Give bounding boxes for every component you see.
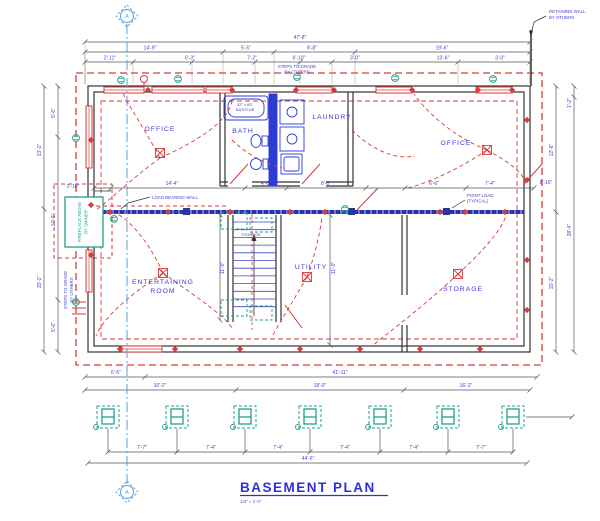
dryer-door <box>287 134 297 144</box>
laundry-tub-basin <box>284 157 299 171</box>
bath-sink <box>251 159 262 170</box>
title-block: BASEMENT PLAN 1/4" = 1'-0" <box>240 480 388 504</box>
dim-stair: 11'-0" <box>331 262 337 275</box>
outlet-symbol <box>524 307 530 313</box>
laundry-door <box>302 164 320 184</box>
vent-symbol <box>490 76 497 83</box>
outlet-symbol <box>462 209 468 215</box>
dim-right-beam: 8'-10" <box>540 180 553 186</box>
outlet-symbol <box>287 209 293 215</box>
retaining-wall-leader <box>531 16 546 34</box>
section-marker-top-label: A <box>125 14 129 20</box>
leader-arrowhead <box>530 31 533 36</box>
drawing-scale: 1/4" = 1'-0" <box>240 499 262 504</box>
point-load-note: POINT LOAD <box>467 193 494 198</box>
pad-footing <box>221 300 247 316</box>
dim-beam: 6'-6" <box>429 181 439 187</box>
load-bearing-wall-note: LOAD BEARING WALL <box>152 195 199 200</box>
under-stair-storage-label: STORAGE <box>241 232 261 237</box>
washer <box>280 100 304 124</box>
room-label-entertaining: ROOM <box>150 288 175 295</box>
dim-right: 1'-2" <box>567 98 573 108</box>
outlet-symbol <box>107 209 113 215</box>
steps-to-grade-top-note: STEPS TO GRADE <box>278 64 316 69</box>
electrical-circuit-curves <box>96 84 525 346</box>
basement-floor-plan: A A 47'-8" 14'-9" 5'-5" 8'-8" 19'-6" 2'-… <box>0 0 600 521</box>
room-label-laundry: LAUNDRY <box>312 114 351 121</box>
dim-footing: 7'-4" <box>340 445 350 451</box>
dim-top: 6'-10" <box>293 56 306 62</box>
dim-beam: 14'-4" <box>166 181 179 187</box>
steps-to-grade-top-note: BY OTHERS <box>284 70 309 75</box>
washer-door <box>287 107 297 117</box>
section-marker-bottom: A <box>116 481 138 503</box>
outlet-symbol <box>477 346 483 352</box>
dim-stair: 11'-0" <box>220 262 226 275</box>
light-fixture-symbol <box>156 149 165 158</box>
dim-beam: 4'-6" <box>261 181 271 187</box>
load-bearing-leader <box>121 197 150 209</box>
dim-bottom: 18'-0" <box>314 383 327 389</box>
dim-top: 5'-5" <box>241 46 251 52</box>
retaining-wall-note: BY OTHERS <box>549 15 574 20</box>
fireplace-note: FIREPLACE ABOVE <box>77 202 82 243</box>
outlet-symbol <box>524 257 530 263</box>
dim-top: 14'-9" <box>144 46 157 52</box>
toilet <box>251 135 261 148</box>
dim-beam: 7'-4" <box>485 181 495 187</box>
dim-left: 5'-6" <box>51 322 57 332</box>
fireplace-note: BY OWNER <box>84 210 89 234</box>
dim-top-total: 47'-8" <box>294 35 307 41</box>
dimension-texts: 47'-8" 14'-9" 5'-5" 8'-8" 19'-6" 2'-11" … <box>37 35 573 462</box>
column-footing-symbol <box>434 406 460 430</box>
walls <box>88 30 531 352</box>
vent-symbol <box>294 74 301 81</box>
dim-right: 12'-8" <box>549 143 555 156</box>
beam-post <box>348 208 355 215</box>
room-label-office-right: OFFICE <box>441 140 472 147</box>
outlet-symbol <box>357 346 363 352</box>
dim-footing: 7'-7" <box>137 445 147 451</box>
leader-lines <box>94 16 546 209</box>
section-line: A A <box>116 5 138 503</box>
light-fixture-symbol <box>303 273 312 282</box>
room-label-bath: BATH <box>232 128 254 135</box>
room-label-utility: UTILITY <box>295 264 327 271</box>
point-load-leader <box>452 200 465 208</box>
vent-symbol <box>118 77 125 84</box>
dim-top: 3'-0" <box>350 56 360 62</box>
pad-footing <box>221 213 247 229</box>
outlet-symbol <box>502 209 508 215</box>
dim-beam: 1'-10" <box>67 184 80 190</box>
dimension-lines <box>42 40 577 466</box>
dim-bottom: 41'-11" <box>332 370 347 376</box>
outlet-symbol <box>237 346 243 352</box>
column-footing-symbol <box>499 406 525 430</box>
room-label-entertaining: ENTERTAINING <box>132 279 194 286</box>
pad-footing <box>250 306 272 320</box>
dim-footing: 7'-4" <box>409 445 419 451</box>
dryer <box>280 127 304 151</box>
room-label-office-left: OFFICE <box>145 126 176 133</box>
room-labels: OFFICE BATH LAUNDRY OFFICE ENTERTAINING … <box>132 114 483 295</box>
dim-footing-total: 44'-6" <box>302 456 315 462</box>
dim-bottom: 6'-5" <box>111 370 121 376</box>
column-footing-symbol <box>94 406 120 430</box>
outlet-symbol <box>172 346 178 352</box>
dim-right: 15'-2" <box>549 276 555 289</box>
dim-bottom: 16'-2" <box>460 383 473 389</box>
dim-left: 13'-2" <box>37 143 43 156</box>
column-footing-symbol <box>163 406 189 430</box>
light-fixture-symbol <box>159 269 168 278</box>
drawing-title: BASEMENT PLAN <box>240 480 376 495</box>
outlet-symbol <box>322 209 328 215</box>
dim-left: 15'-2" <box>37 275 43 288</box>
dim-left: 17'-6" <box>51 213 57 226</box>
dim-top: 6'-3" <box>185 56 195 62</box>
steps-to-grade-left-note: STEPS TO GRADE <box>63 271 68 309</box>
outlet-symbol <box>437 209 443 215</box>
dim-top: 8'-8" <box>307 46 317 52</box>
section-marker-top: A <box>116 5 138 27</box>
outlet-symbol <box>165 209 171 215</box>
toilet-tank <box>262 136 268 146</box>
footing-symbols <box>94 406 575 452</box>
dim-left: 5'-6" <box>51 108 57 118</box>
dim-footing: 7'-7" <box>476 445 486 451</box>
vent-symbol <box>392 75 399 82</box>
plumbing-wall <box>269 94 277 186</box>
room-label-storage: STORAGE <box>443 286 483 293</box>
inner-red-dashed-line <box>101 101 517 339</box>
dim-top: 19'-6" <box>436 46 449 52</box>
dim-beam: 8'-6" <box>321 181 331 187</box>
dim-top: 2'-11" <box>104 56 117 62</box>
entertaining-door <box>285 305 302 328</box>
outlet-symbol <box>417 346 423 352</box>
sink-pedestal <box>263 159 268 169</box>
outlet-symbol <box>227 209 233 215</box>
point-load-note: (TYPICAL) <box>467 199 489 204</box>
outer-red-dashed-line <box>76 73 542 365</box>
bath-door <box>230 164 248 184</box>
retaining-wall-note: RETAINING WALL <box>549 9 586 14</box>
section-marker-bottom-label: A <box>125 490 129 496</box>
laundry-right-wall <box>348 92 353 186</box>
light-fixture-symbol <box>454 270 463 279</box>
dim-top: 13'-6" <box>437 56 450 62</box>
door-swings <box>72 164 542 328</box>
outlet-symbol <box>524 117 530 123</box>
drawing-sheet: A A 47'-8" 14'-9" 5'-5" 8'-8" 19'-6" 2'-… <box>0 0 600 521</box>
utility-door <box>357 188 378 210</box>
load-bearing-beam <box>94 208 524 215</box>
column-footing-symbol <box>366 406 392 430</box>
beam-post <box>183 208 190 215</box>
column-footing-symbol <box>231 406 257 430</box>
dim-footing: 7'-4" <box>273 445 283 451</box>
steps-to-grade-left-note: BY OTHERS <box>69 277 74 302</box>
storage-left-wall <box>402 215 407 352</box>
beam-post <box>443 208 450 215</box>
pad-footing-outlines <box>221 213 272 320</box>
light-fixture-symbol <box>483 146 492 155</box>
bath-laundry-bottom-wall <box>220 182 353 186</box>
dim-right: 28'-4" <box>567 223 573 236</box>
vent-symbol <box>175 76 182 83</box>
column-footing-symbol <box>296 406 322 430</box>
outlet-symbol <box>297 346 303 352</box>
dim-bottom: 16'-2" <box>154 383 167 389</box>
dim-top: 3'-0" <box>495 56 505 62</box>
dim-footing: 7'-4" <box>206 445 216 451</box>
dim-top: 7'-2" <box>247 56 257 62</box>
bathtub-size-note: BATHTUB <box>236 107 255 112</box>
